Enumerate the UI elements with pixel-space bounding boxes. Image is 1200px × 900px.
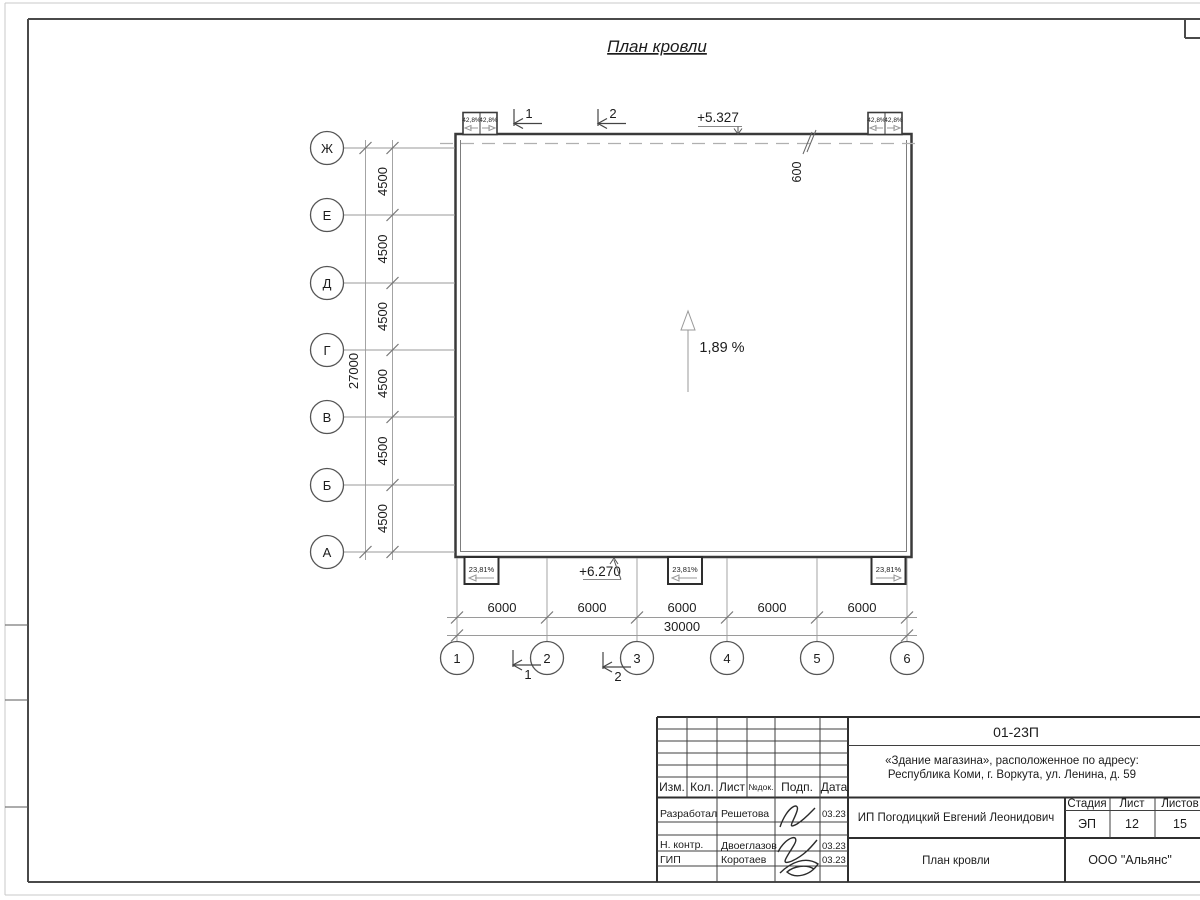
elevation-mark-bottom: +6.270: [579, 558, 621, 580]
section-mark-label: 1: [525, 106, 532, 121]
title-block: 01-23П «Здание магазина», расположенное …: [657, 717, 1200, 882]
page-title: План кровли: [607, 37, 707, 56]
sheet-label: Лист: [1120, 798, 1146, 810]
axis-label: Ж: [321, 141, 333, 156]
elevation-value: +6.270: [579, 564, 621, 579]
funnel-slope-label: 23,81%: [469, 565, 495, 574]
dim-label: 6000: [578, 600, 607, 615]
axis-label: 6: [903, 651, 910, 666]
axis-label: 5: [813, 651, 820, 666]
name-gip: Коротаев: [721, 854, 767, 866]
col-header-list: Лист: [719, 780, 746, 794]
sheets-label: Листов: [1161, 798, 1198, 810]
drawing-canvas: План кровли Ж Е Д Г: [0, 0, 1200, 900]
axis-label: Г: [323, 343, 330, 358]
stage-label: Стадия: [1067, 798, 1106, 810]
dim-label: 4500: [375, 437, 390, 466]
sheets-value: 15: [1173, 817, 1187, 831]
drawing-sheet: План кровли Ж Е Д Г: [0, 0, 1200, 900]
funnel-slope-label: 23,81%: [876, 565, 902, 574]
date-ncontrol: 03.23: [822, 841, 846, 852]
section-mark-label: 1: [524, 667, 531, 682]
dim-label: 4500: [375, 369, 390, 398]
col-header-data: Дата: [821, 780, 848, 794]
roof-funnel-bottom-3: 23,81%: [872, 557, 906, 584]
elevation-value: +5.327: [697, 110, 739, 125]
project-address-line2: Республика Коми, г. Воркута, ул. Ленина,…: [888, 769, 1136, 781]
slope-label: 1,89 %: [699, 340, 744, 356]
signature-scribble-2: [778, 838, 818, 876]
signature-scribble-1: [780, 806, 815, 827]
section-mark-label: 2: [609, 106, 616, 121]
client-name: ИП Погодицкий Евгений Леонидович: [858, 812, 1055, 824]
name-developer: Решетова: [721, 808, 769, 820]
dim-label: 6000: [848, 600, 877, 615]
roof-funnel-bottom-2: 23,81%: [668, 557, 702, 584]
dim-total-vertical: 27000: [346, 353, 361, 389]
axis-label: 2: [543, 651, 550, 666]
project-address-line1: «Здание магазина», расположенное по адре…: [885, 755, 1139, 767]
roof-funnel-bottom-1: 23,81%: [465, 557, 499, 584]
dim-total-horizontal: 30000: [664, 619, 700, 634]
axis-label: В: [323, 410, 332, 425]
axis-label: 1: [453, 651, 460, 666]
axis-label: Б: [323, 478, 332, 493]
offset-value: 600: [790, 162, 804, 183]
funnel-slope-label: 42,8%: [867, 117, 886, 124]
roof-outline: [440, 134, 918, 557]
axis-label: Е: [323, 208, 332, 223]
funnel-slope-label: 42,8%: [479, 117, 498, 124]
company-name: ООО "Альянс": [1088, 853, 1172, 867]
dim-label: 4500: [375, 167, 390, 196]
funnel-slope-label: 42,8%: [884, 117, 903, 124]
funnel-slope-label: 23,81%: [672, 565, 698, 574]
date-gip: 03.23: [822, 855, 846, 866]
dim-label: 4500: [375, 302, 390, 331]
document-code: 01-23П: [993, 724, 1039, 740]
name-ncontrol: Двоеглазов: [721, 840, 777, 852]
elevation-mark-top: +5.327: [697, 110, 742, 134]
funnel-slope-label: 42,8%: [462, 117, 481, 124]
axis-label: А: [323, 545, 332, 560]
section-mark-label: 2: [614, 669, 621, 684]
col-header-kol: Кол.: [690, 780, 714, 794]
stage-value: ЭП: [1078, 817, 1096, 831]
role-developer: Разработал: [660, 808, 717, 820]
left-margin-table: [5, 625, 28, 807]
date-developer: 03.23: [822, 809, 846, 820]
row-axes: Ж Е Д Г В Б А: [311, 132, 456, 569]
dim-label: 6000: [668, 600, 697, 615]
dim-label: 4500: [375, 504, 390, 533]
roof-funnel-top-right: 42,8% 42,8%: [867, 113, 903, 135]
roof-funnel-top-left: 42,8% 42,8%: [462, 113, 498, 135]
dim-label: 6000: [758, 600, 787, 615]
axis-label: 4: [723, 651, 730, 666]
role-gip: ГИП: [660, 854, 681, 866]
axis-label: 3: [633, 651, 640, 666]
axis-label: Д: [323, 276, 332, 291]
dim-label: 4500: [375, 235, 390, 264]
dim-label: 6000: [488, 600, 517, 615]
role-ncontrol: Н. контр.: [660, 839, 703, 851]
col-header-podp: Подп.: [781, 780, 813, 794]
sheet-value: 12: [1125, 817, 1139, 831]
col-header-izm: Изм.: [659, 780, 685, 794]
sheet-title: План кровли: [922, 855, 990, 867]
col-header-ndok: №док.: [749, 782, 774, 792]
